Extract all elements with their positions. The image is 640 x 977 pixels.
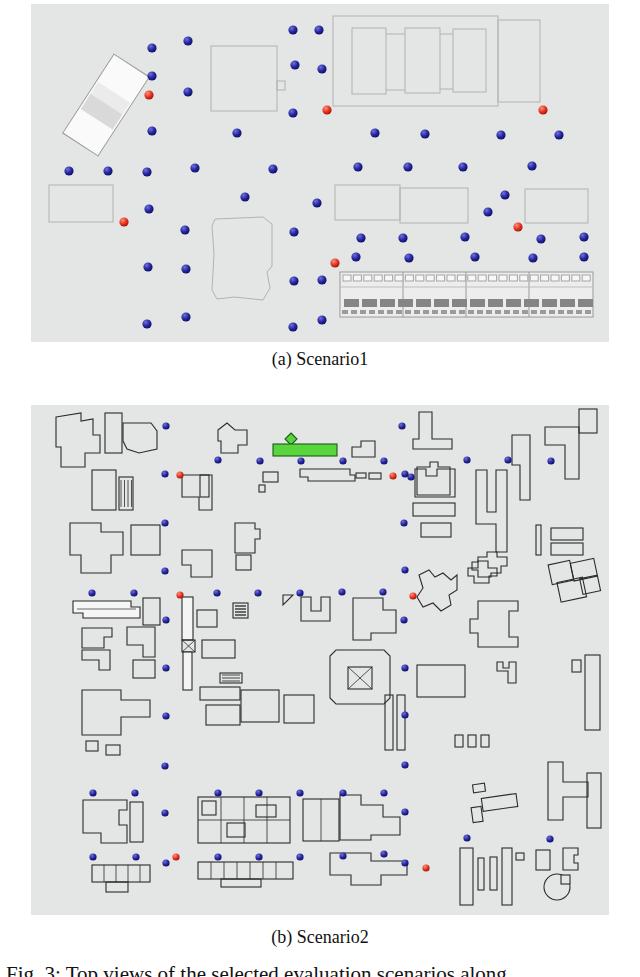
building-outline bbox=[182, 475, 212, 510]
building-outline bbox=[263, 472, 278, 482]
blue-sample-dot bbox=[89, 853, 96, 860]
blue-sample-dot bbox=[380, 850, 387, 857]
building-outline bbox=[548, 762, 588, 820]
building-outline bbox=[572, 275, 580, 281]
building-outline bbox=[495, 310, 501, 314]
building-outline bbox=[450, 310, 456, 314]
blue-sample-dot bbox=[401, 761, 408, 768]
blue-sample-dot bbox=[500, 190, 509, 199]
building-outline bbox=[468, 275, 476, 281]
building-outline bbox=[460, 848, 473, 905]
blue-sample-dot bbox=[404, 253, 413, 262]
blue-sample-dot bbox=[401, 859, 408, 866]
building-outline bbox=[73, 601, 140, 618]
caption-scenario2: (b) Scenario2 bbox=[0, 927, 640, 948]
blue-sample-dot bbox=[254, 589, 261, 596]
blue-sample-dot bbox=[213, 589, 220, 596]
building-outline bbox=[182, 597, 193, 640]
red-sample-dot bbox=[422, 864, 429, 871]
blue-sample-dot bbox=[288, 25, 297, 34]
caption-scenario1: (a) Scenario1 bbox=[0, 349, 640, 370]
building-outline bbox=[525, 189, 588, 223]
building-outline bbox=[488, 299, 503, 307]
blue-sample-dot bbox=[289, 276, 298, 285]
building-outline bbox=[481, 735, 489, 747]
blue-sample-dot bbox=[161, 519, 168, 526]
blue-sample-dot bbox=[142, 167, 151, 176]
building-outline bbox=[83, 800, 127, 843]
building-outline bbox=[421, 523, 451, 537]
building-outline bbox=[489, 275, 497, 281]
blue-sample-dot bbox=[483, 207, 492, 216]
blue-sample-dot bbox=[162, 664, 169, 671]
figure-caption: Fig. 3: Top views of the selected evalua… bbox=[6, 962, 640, 977]
building-outline bbox=[522, 310, 528, 314]
building-outline bbox=[106, 745, 120, 755]
building-outline bbox=[478, 858, 484, 890]
blue-sample-dot bbox=[255, 789, 262, 796]
building-outline bbox=[498, 20, 540, 102]
blue-sample-dot bbox=[161, 762, 168, 769]
building-outline bbox=[369, 310, 375, 314]
blue-sample-dot bbox=[527, 161, 536, 170]
building-outline bbox=[477, 310, 483, 314]
blue-sample-dot bbox=[144, 204, 153, 213]
building-outline bbox=[397, 695, 405, 750]
blue-sample-dot bbox=[240, 192, 249, 201]
scenario1-map bbox=[31, 4, 609, 342]
blue-sample-dot bbox=[401, 664, 408, 671]
blue-sample-dot bbox=[496, 130, 505, 139]
building-outline bbox=[472, 552, 507, 577]
building-outline bbox=[127, 627, 155, 657]
building-outline bbox=[416, 275, 424, 281]
blue-sample-dot bbox=[161, 470, 168, 477]
blue-sample-dot bbox=[380, 789, 387, 796]
building-outline bbox=[200, 475, 209, 497]
building-outline bbox=[131, 525, 160, 555]
building-outline bbox=[198, 862, 293, 879]
building-outline bbox=[256, 805, 276, 817]
blue-sample-dot bbox=[290, 60, 299, 69]
blue-sample-dot bbox=[353, 162, 362, 171]
building-outline bbox=[385, 695, 393, 750]
building-outline bbox=[486, 310, 492, 314]
building-outline bbox=[105, 413, 122, 453]
building-outline bbox=[82, 650, 110, 670]
building-outline bbox=[499, 275, 507, 281]
blue-sample-dot bbox=[288, 108, 297, 117]
building-outline bbox=[516, 853, 524, 860]
blue-sample-dot bbox=[401, 470, 408, 477]
blue-sample-dot bbox=[143, 262, 152, 271]
building-outline bbox=[512, 435, 530, 500]
building-outline bbox=[400, 188, 468, 223]
red-sample-dot bbox=[330, 258, 339, 267]
blue-sample-dot bbox=[214, 853, 221, 860]
building-outline bbox=[423, 310, 429, 314]
building-outline bbox=[560, 299, 575, 307]
blue-sample-dot bbox=[379, 588, 386, 595]
building-outline bbox=[470, 601, 518, 647]
building-outline bbox=[285, 433, 297, 445]
building-outline bbox=[405, 275, 413, 281]
building-outline bbox=[202, 801, 216, 815]
red-sample-dot bbox=[322, 105, 331, 114]
building-outline bbox=[441, 310, 447, 314]
building-outline bbox=[432, 310, 438, 314]
blue-sample-dot bbox=[460, 232, 469, 241]
building-outline bbox=[545, 427, 579, 479]
building-outline bbox=[398, 299, 413, 307]
building-outline bbox=[380, 299, 395, 307]
blue-sample-dot bbox=[162, 616, 169, 623]
blue-sample-dot bbox=[161, 809, 168, 816]
blue-sample-dot bbox=[296, 853, 303, 860]
building-outline bbox=[563, 848, 578, 870]
building-outline bbox=[143, 598, 160, 625]
building-outline bbox=[396, 310, 402, 314]
building-outline bbox=[473, 783, 486, 793]
blue-sample-dot bbox=[401, 566, 408, 573]
blue-sample-dot bbox=[190, 163, 199, 172]
building-outline bbox=[531, 310, 537, 314]
building-outline bbox=[561, 875, 570, 884]
red-sample-dot bbox=[119, 217, 128, 226]
building-outline bbox=[218, 423, 247, 453]
red-sample-dot bbox=[176, 471, 183, 478]
building-outline bbox=[530, 275, 538, 281]
building-outline bbox=[434, 299, 449, 307]
blue-sample-dot bbox=[214, 789, 221, 796]
blue-sample-dot bbox=[401, 808, 408, 815]
building-outline bbox=[344, 299, 359, 307]
building-outline bbox=[561, 275, 569, 281]
building-outline bbox=[551, 275, 559, 281]
building-outline bbox=[284, 695, 314, 723]
building-outline bbox=[476, 470, 507, 552]
building-outline bbox=[452, 299, 467, 307]
building-outline bbox=[133, 660, 155, 678]
building-outline bbox=[277, 81, 285, 90]
building-outline bbox=[106, 882, 128, 892]
building-outline bbox=[541, 275, 549, 281]
building-outline bbox=[509, 275, 517, 281]
scenario1-map-panel bbox=[31, 4, 609, 342]
red-sample-dot bbox=[144, 90, 153, 99]
blue-sample-dot bbox=[401, 711, 408, 718]
building-outline bbox=[235, 523, 260, 553]
building-outline bbox=[502, 848, 512, 905]
blue-sample-dot bbox=[380, 457, 387, 464]
building-outline bbox=[202, 640, 235, 658]
building-outline bbox=[70, 523, 123, 573]
building-outline bbox=[130, 802, 143, 842]
blue-sample-dot bbox=[256, 457, 263, 464]
building-outline bbox=[417, 665, 465, 697]
building-outline bbox=[374, 275, 382, 281]
scenario2-map bbox=[31, 405, 609, 915]
blue-sample-dot bbox=[296, 589, 303, 596]
building-outline bbox=[92, 865, 150, 882]
building-outline bbox=[455, 735, 463, 747]
blue-sample-dot bbox=[147, 71, 156, 80]
blue-sample-dot bbox=[297, 457, 304, 464]
building-outline bbox=[417, 570, 457, 611]
blue-sample-dot bbox=[317, 315, 326, 324]
building-outline bbox=[182, 550, 212, 577]
blue-sample-dot bbox=[161, 567, 168, 574]
red-sample-dot bbox=[538, 105, 547, 114]
blue-sample-dot bbox=[370, 128, 379, 137]
blue-sample-dot bbox=[288, 322, 297, 331]
building-outline bbox=[506, 299, 521, 307]
building-outline bbox=[582, 275, 590, 281]
building-outline bbox=[540, 310, 546, 314]
blue-sample-dot bbox=[162, 422, 169, 429]
blue-sample-dot bbox=[147, 43, 156, 52]
red-sample-dot bbox=[409, 592, 416, 599]
building-outline bbox=[585, 310, 591, 314]
blue-sample-dot bbox=[470, 252, 479, 261]
blue-sample-dot bbox=[314, 25, 323, 34]
building-outline bbox=[342, 310, 348, 314]
building-outline bbox=[447, 275, 455, 281]
building-outline bbox=[300, 469, 355, 481]
building-outline bbox=[524, 299, 539, 307]
blue-sample-dot bbox=[103, 166, 112, 175]
blue-sample-dot bbox=[289, 227, 298, 236]
scenario2-map-panel bbox=[31, 405, 609, 915]
blue-sample-dot bbox=[458, 162, 467, 171]
building-outline bbox=[551, 528, 583, 540]
blue-sample-dot bbox=[463, 834, 470, 841]
building-outline bbox=[387, 310, 393, 314]
blue-sample-dot bbox=[147, 126, 156, 135]
building-outline bbox=[351, 310, 357, 314]
building-outline bbox=[211, 46, 277, 111]
building-outline bbox=[200, 687, 240, 700]
blue-sample-dot bbox=[183, 36, 192, 45]
building-outline bbox=[513, 310, 519, 314]
blue-sample-dot bbox=[296, 789, 303, 796]
building-outline bbox=[572, 660, 581, 672]
blue-sample-dot bbox=[232, 128, 241, 137]
building-outline bbox=[576, 310, 582, 314]
blue-sample-dot bbox=[528, 253, 537, 262]
blue-sample-dot bbox=[64, 166, 73, 175]
building-outline bbox=[49, 185, 113, 222]
building-outline bbox=[233, 603, 248, 618]
building-outline bbox=[414, 310, 420, 314]
blue-sample-dot bbox=[398, 422, 405, 429]
building-outline bbox=[123, 423, 157, 453]
building-outline bbox=[343, 275, 351, 281]
building-outline bbox=[212, 217, 272, 300]
building-outline bbox=[504, 310, 510, 314]
building-outline bbox=[335, 185, 400, 220]
building-outline bbox=[353, 598, 396, 640]
blue-sample-dot bbox=[88, 589, 95, 596]
building-outline bbox=[241, 690, 279, 722]
building-outline bbox=[405, 28, 440, 93]
building-outline bbox=[470, 299, 485, 307]
blue-sample-dot bbox=[338, 588, 345, 595]
building-outline bbox=[362, 299, 377, 307]
building-outline bbox=[415, 469, 455, 497]
blue-sample-dot bbox=[131, 789, 138, 796]
building-outline bbox=[437, 275, 445, 281]
blue-sample-dot bbox=[317, 275, 326, 284]
blue-sample-dot bbox=[351, 252, 360, 261]
building-outline bbox=[82, 690, 150, 735]
building-outline bbox=[364, 275, 372, 281]
building-outline bbox=[86, 741, 98, 751]
blue-sample-dot bbox=[339, 789, 346, 796]
building-outline bbox=[585, 655, 600, 730]
building-outline bbox=[197, 610, 217, 627]
blue-sample-dot bbox=[181, 264, 190, 273]
blue-sample-dot bbox=[162, 712, 169, 719]
building-outline bbox=[413, 503, 455, 516]
building-outline bbox=[520, 275, 528, 281]
building-outline bbox=[413, 412, 452, 449]
blue-sample-dot bbox=[579, 232, 588, 241]
blue-sample-dot bbox=[554, 130, 563, 139]
building-outline bbox=[385, 275, 393, 281]
blue-sample-dot bbox=[132, 853, 139, 860]
red-sample-dot bbox=[176, 591, 183, 598]
building-outline bbox=[471, 806, 483, 822]
blue-sample-dot bbox=[214, 456, 221, 463]
building-outline bbox=[536, 850, 550, 870]
building-outline bbox=[360, 310, 366, 314]
blue-sample-dot bbox=[183, 87, 192, 96]
building-outline bbox=[542, 299, 557, 307]
building-outline bbox=[405, 310, 411, 314]
blue-sample-dot bbox=[504, 456, 511, 463]
building-outline bbox=[481, 794, 517, 812]
building-outline bbox=[56, 413, 100, 467]
building-outline bbox=[468, 310, 474, 314]
blue-sample-dot bbox=[180, 225, 189, 234]
building-outline bbox=[352, 441, 375, 457]
blue-sample-dot bbox=[579, 252, 588, 261]
building-outline bbox=[417, 462, 450, 495]
blue-sample-dot bbox=[398, 233, 407, 242]
building-outline bbox=[395, 275, 403, 281]
building-outline bbox=[536, 525, 541, 555]
building-outline bbox=[353, 275, 361, 281]
building-outline bbox=[551, 543, 583, 555]
building-outline bbox=[352, 28, 386, 94]
blue-sample-dot bbox=[536, 234, 545, 243]
blue-sample-dot bbox=[403, 162, 412, 171]
building-outline bbox=[416, 299, 431, 307]
building-outline bbox=[283, 595, 293, 605]
blue-sample-dot bbox=[162, 859, 169, 866]
building-outline bbox=[497, 662, 516, 683]
building-outline bbox=[259, 485, 265, 492]
building-outline bbox=[82, 628, 112, 648]
building-outline bbox=[273, 444, 337, 456]
building-outline bbox=[183, 652, 192, 690]
blue-sample-dot bbox=[420, 129, 429, 138]
building-outline bbox=[490, 857, 497, 890]
building-outline bbox=[478, 275, 486, 281]
building-outline bbox=[558, 310, 564, 314]
building-outline bbox=[578, 299, 593, 307]
blue-sample-dot bbox=[312, 198, 321, 207]
building-outline bbox=[468, 735, 476, 747]
blue-sample-dot bbox=[142, 319, 151, 328]
blue-sample-dot bbox=[317, 64, 326, 73]
blue-sample-dot bbox=[547, 457, 554, 464]
red-sample-dot bbox=[172, 853, 179, 860]
building-outline bbox=[340, 795, 400, 840]
building-outline bbox=[579, 409, 597, 433]
blue-sample-dot bbox=[89, 789, 96, 796]
blue-sample-dot bbox=[339, 457, 346, 464]
building-outline bbox=[221, 879, 261, 887]
building-outline bbox=[378, 310, 384, 314]
building-outline bbox=[459, 310, 465, 314]
blue-sample-dot bbox=[546, 835, 553, 842]
building-outline bbox=[369, 473, 381, 479]
blue-sample-dot bbox=[400, 519, 407, 526]
blue-sample-dot bbox=[130, 589, 137, 596]
blue-sample-dot bbox=[356, 233, 365, 242]
building-outline bbox=[453, 29, 486, 92]
building-outline bbox=[587, 773, 601, 828]
blue-sample-dot bbox=[400, 616, 407, 623]
building-outline bbox=[567, 310, 573, 314]
building-outline bbox=[236, 555, 251, 570]
building-outline bbox=[92, 470, 116, 510]
building-outline bbox=[549, 310, 555, 314]
building-outline bbox=[330, 650, 390, 704]
red-sample-dot bbox=[389, 472, 396, 479]
blue-sample-dot bbox=[181, 312, 190, 321]
blue-sample-dot bbox=[268, 164, 277, 173]
blue-sample-dot bbox=[255, 853, 262, 860]
building-outline bbox=[457, 275, 465, 281]
building-outline bbox=[301, 597, 330, 621]
building-outline bbox=[426, 275, 434, 281]
building-outline bbox=[356, 473, 366, 478]
blue-sample-dot bbox=[463, 456, 470, 463]
building-outline bbox=[206, 705, 240, 725]
blue-sample-dot bbox=[339, 852, 346, 859]
building-outline bbox=[227, 823, 245, 837]
red-sample-dot bbox=[513, 222, 522, 231]
